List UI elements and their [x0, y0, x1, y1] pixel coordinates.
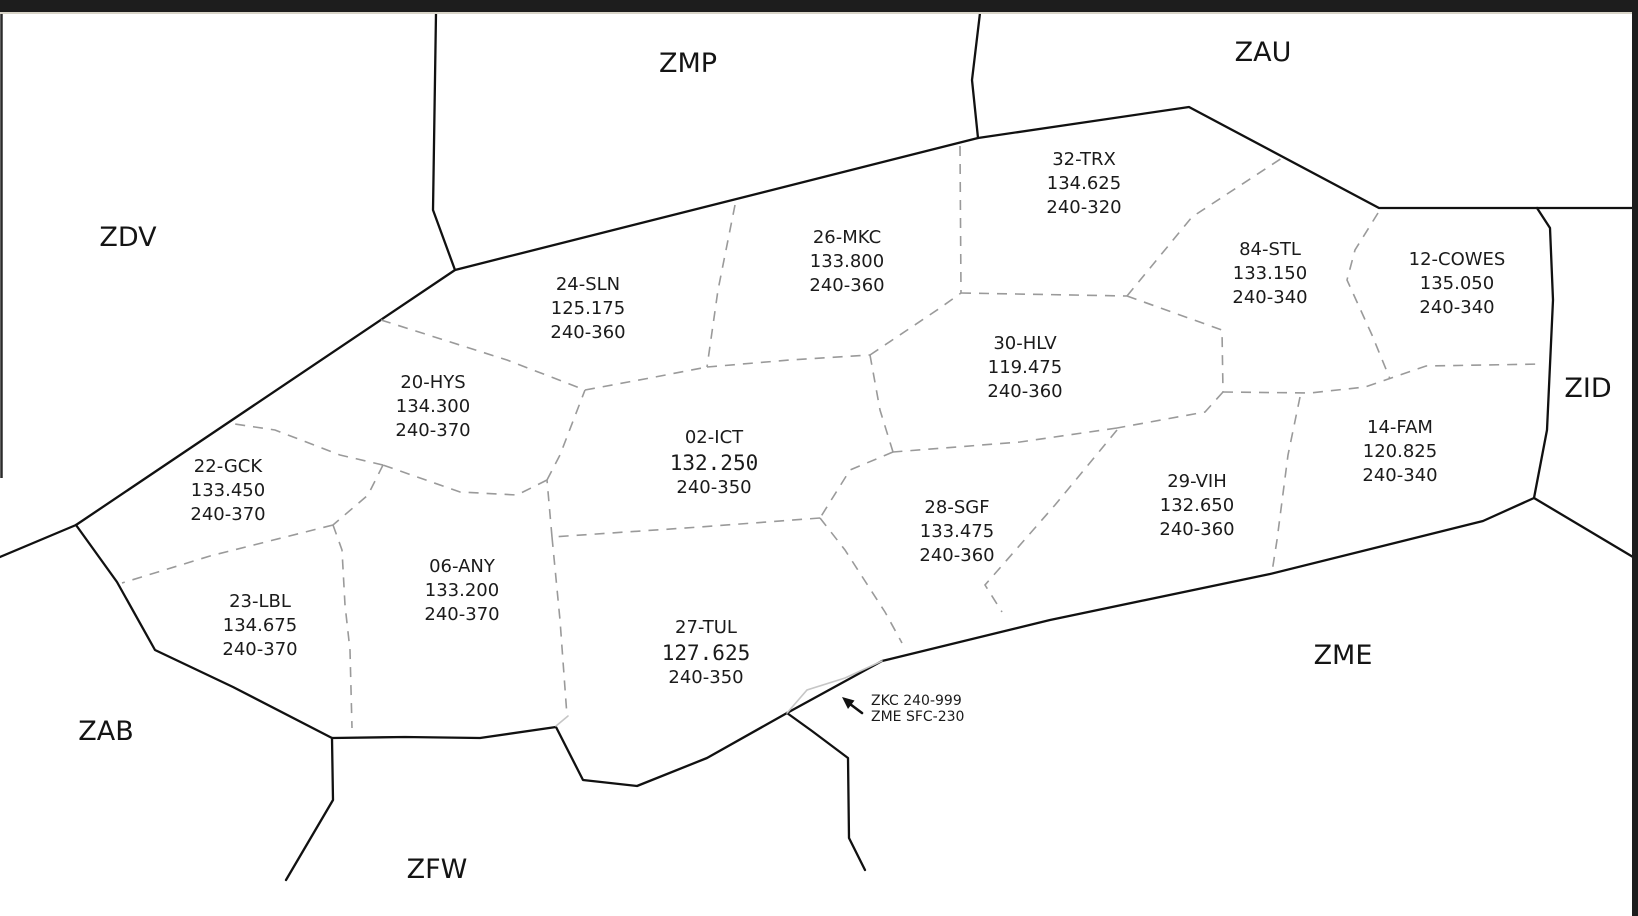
sector-altitude-range: 240-360: [1097, 518, 1297, 542]
sector-label-14-fam: 14-FAM120.825240-340: [1300, 416, 1500, 488]
artcc-label-zme: ZME: [1263, 641, 1423, 671]
sector-label-22-gck: 22-GCK133.450240-370: [128, 455, 328, 527]
sector-map: 24-SLN125.175240-36026-MKC133.800240-360…: [0, 0, 1638, 916]
sector-name: 24-SLN: [488, 273, 688, 297]
sector-altitude-range: 240-350: [606, 666, 806, 690]
sector-label-32-trx: 32-TRX134.625240-320: [984, 148, 1184, 220]
sector-frequency: 133.200: [362, 579, 562, 603]
artcc-label-zmp: ZMP: [608, 49, 768, 79]
sector-frequency: 132.650: [1097, 494, 1297, 518]
overlap-annotation-line1: ZKC 240-999: [871, 693, 964, 709]
sector-name: 84-STL: [1170, 238, 1370, 262]
sector-altitude-range: 240-360: [925, 380, 1125, 404]
top-frame-bar: [0, 0, 1638, 12]
right-frame-bar: [1632, 0, 1638, 916]
sector-frequency: 134.625: [984, 172, 1184, 196]
sector-altitude-range: 240-370: [128, 503, 328, 527]
sector-altitude-range: 240-350: [614, 476, 814, 500]
sector-name: 26-MKC: [747, 226, 947, 250]
sector-frequency: 125.175: [488, 297, 688, 321]
artcc-label-zdv: ZDV: [48, 223, 208, 253]
sector-frequency: 127.625: [606, 640, 806, 666]
sector-name: 14-FAM: [1300, 416, 1500, 440]
sector-name: 32-TRX: [984, 148, 1184, 172]
sector-label-30-hlv: 30-HLV119.475240-360: [925, 332, 1125, 404]
sector-name: 20-HYS: [333, 371, 533, 395]
sector-frequency: 119.475: [925, 356, 1125, 380]
sector-name: 06-ANY: [362, 555, 562, 579]
sector-altitude-range: 240-370: [333, 419, 533, 443]
sector-label-02-ict: 02-ICT132.250240-350: [614, 426, 814, 500]
sector-frequency: 133.475: [857, 520, 1057, 544]
sector-name: 22-GCK: [128, 455, 328, 479]
artcc-label-zab: ZAB: [26, 717, 186, 747]
sector-frequency: 120.825: [1300, 440, 1500, 464]
artcc-label-zfw: ZFW: [357, 855, 517, 885]
sector-label-12-cowes: 12-COWES135.050240-340: [1357, 248, 1557, 320]
sector-label-29-vih: 29-VIH132.650240-360: [1097, 470, 1297, 542]
sector-altitude-range: 240-360: [747, 274, 947, 298]
sector-frequency: 132.250: [614, 450, 814, 476]
sector-frequency: 134.675: [160, 614, 360, 638]
sector-name: 27-TUL: [606, 616, 806, 640]
sector-frequency: 134.300: [333, 395, 533, 419]
sector-frequency: 135.050: [1357, 272, 1557, 296]
sector-label-24-sln: 24-SLN125.175240-360: [488, 273, 688, 345]
sector-altitude-range: 240-340: [1357, 296, 1557, 320]
overlap-annotation: ZKC 240-999 ZME SFC-230: [871, 693, 964, 725]
artcc-label-zau: ZAU: [1183, 38, 1343, 68]
sector-label-06-any: 06-ANY133.200240-370: [362, 555, 562, 627]
sector-altitude-range: 240-320: [984, 196, 1184, 220]
sector-label-20-hys: 20-HYS134.300240-370: [333, 371, 533, 443]
frame-hairline: [0, 12, 1638, 14]
annotation-arrow-icon: [842, 697, 862, 713]
sector-name: 02-ICT: [614, 426, 814, 450]
sector-name: 29-VIH: [1097, 470, 1297, 494]
sector-name: 30-HLV: [925, 332, 1125, 356]
sector-label-28-sgf: 28-SGF133.475240-360: [857, 496, 1057, 568]
sector-label-84-stl: 84-STL133.150240-340: [1170, 238, 1370, 310]
sector-altitude-range: 240-340: [1300, 464, 1500, 488]
sector-label-23-lbl: 23-LBL134.675240-370: [160, 590, 360, 662]
sector-name: 23-LBL: [160, 590, 360, 614]
sector-altitude-range: 240-360: [857, 544, 1057, 568]
sector-frequency: 133.450: [128, 479, 328, 503]
overlap-annotation-line2: ZME SFC-230: [871, 709, 964, 725]
sector-altitude-range: 240-340: [1170, 286, 1370, 310]
sector-frequency: 133.150: [1170, 262, 1370, 286]
sector-name: 28-SGF: [857, 496, 1057, 520]
sector-label-26-mkc: 26-MKC133.800240-360: [747, 226, 947, 298]
sector-label-27-tul: 27-TUL127.625240-350: [606, 616, 806, 690]
sector-name: 12-COWES: [1357, 248, 1557, 272]
artcc-label-zid: ZID: [1508, 374, 1638, 404]
sector-frequency: 133.800: [747, 250, 947, 274]
sector-altitude-range: 240-360: [488, 321, 688, 345]
sector-altitude-range: 240-370: [160, 638, 360, 662]
sector-altitude-range: 240-370: [362, 603, 562, 627]
